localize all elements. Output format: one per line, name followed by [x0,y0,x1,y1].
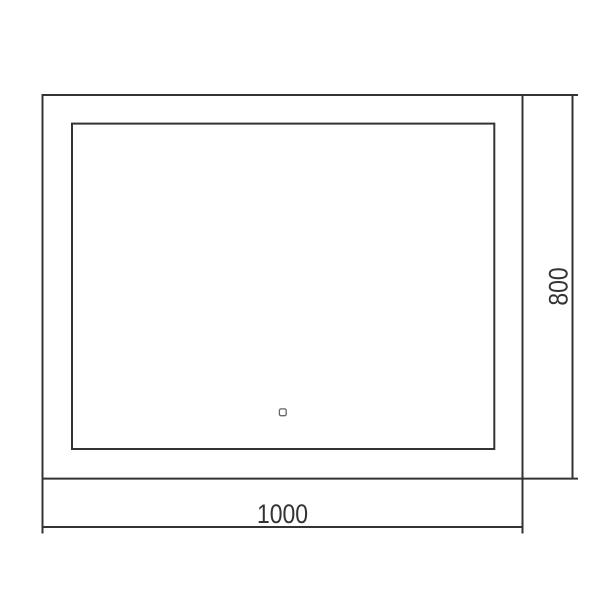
svg-text:1000: 1000 [257,499,308,529]
svg-text:800: 800 [544,267,574,305]
